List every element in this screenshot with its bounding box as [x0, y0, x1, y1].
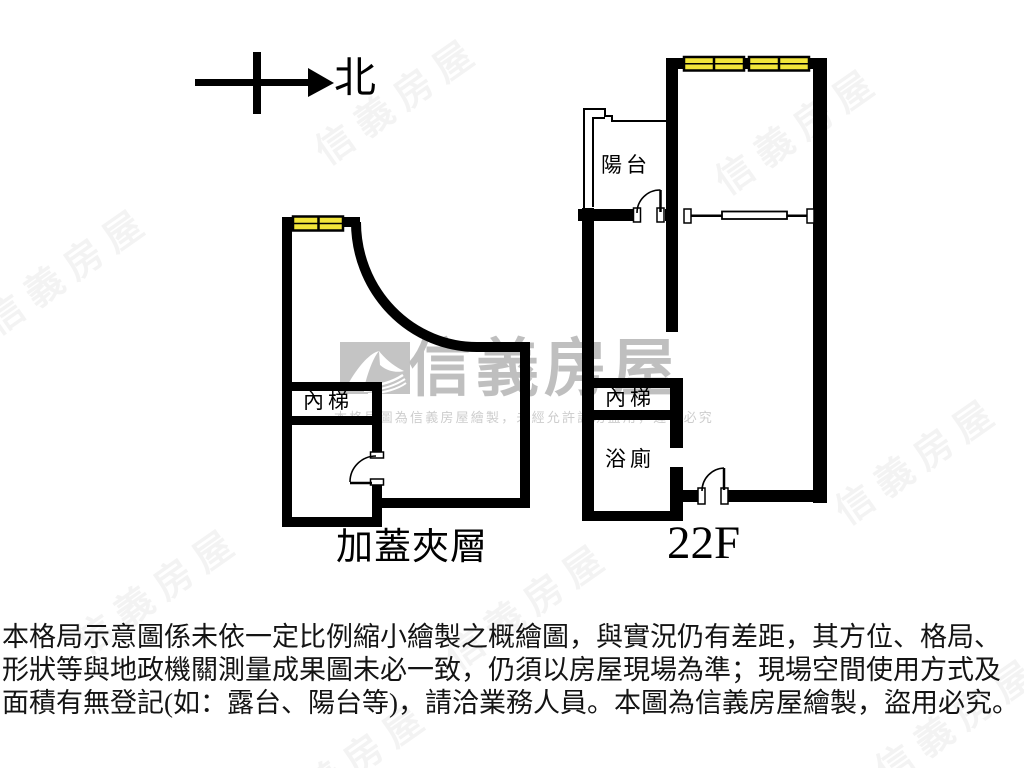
caption-floor22: 22F — [667, 520, 740, 567]
disclaimer-line-2: 形狀等與地政機關測量成果圖未必一致，仍須以房屋現場為準；現場空間使用方式及 — [2, 654, 1019, 687]
disclaimer-line-3: 面積有無登記(如：露台、陽台等)，請洽業務人員。本圖為信義房屋繪製，盜用必究。 — [2, 687, 1019, 720]
disclaimer-text: 本格局示意圖係未依一定比例縮小繪製之概繪圖，與實況仍有差距，其方位、格局、 形狀… — [2, 621, 1019, 721]
floorplan-page: 信義房屋 信義房屋 信義房屋 信義房屋 信義房屋 信義房屋 信義房屋 信義房屋 … — [0, 0, 1024, 768]
disclaimer-line-1: 本格局示意圖係未依一定比例縮小繪製之概繪圖，與實況仍有差距，其方位、格局、 — [2, 621, 1019, 654]
north-label: 北 — [334, 58, 376, 100]
room-label-bathroom: 浴廁 — [605, 449, 655, 470]
room-label-balcony: 陽台 — [601, 155, 651, 176]
caption-mezzanine: 加蓋夾層 — [336, 529, 488, 566]
room-label-mezzanine-stairs: 內梯 — [303, 391, 353, 412]
room-label-floor22-stairs: 內梯 — [605, 388, 655, 409]
